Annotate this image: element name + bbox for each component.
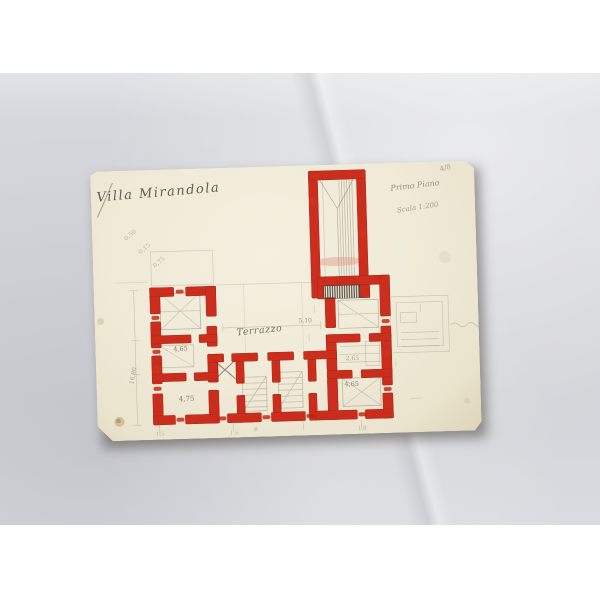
corner-mark: 4/8 [439, 163, 452, 173]
base-tick-3: 1,8 [358, 426, 367, 432]
base-tick-1: 1,5 [156, 432, 165, 438]
floor-plan-drawing: Villa Mirandola 4/8 Primo Piano Scala 1:… [90, 160, 482, 441]
dim-left-room-mid: 4,65 [173, 344, 188, 353]
dim-left-room-bottom: 4,75 [179, 395, 195, 403]
calc-note-1: 0,50 [123, 228, 138, 242]
dim-left-margin: 16,80 [128, 367, 138, 385]
drawing-sheet: Villa Mirandola 4/8 Primo Piano Scala 1:… [90, 160, 482, 441]
terrace-label: Terrazzo [236, 323, 283, 338]
dim-courtyard: 5,10 [298, 317, 312, 324]
title-text: Villa Mirandola [96, 180, 221, 205]
stair-hatch-band [324, 285, 360, 299]
heading-primo-piano: Primo Piano [389, 178, 440, 193]
heading-scala: Scala 1:200 [397, 200, 440, 214]
calc-note-2: 0,15 [137, 242, 152, 256]
calc-note-3: 0,75 [152, 255, 167, 269]
base-tick-2: 1,6 [230, 430, 239, 436]
dim-right-room-bottom: 4,65 [344, 380, 359, 388]
dim-right-room-mid: 2,65 [346, 355, 360, 362]
photo-stage: Villa Mirandola 4/8 Primo Piano Scala 1:… [0, 0, 600, 600]
